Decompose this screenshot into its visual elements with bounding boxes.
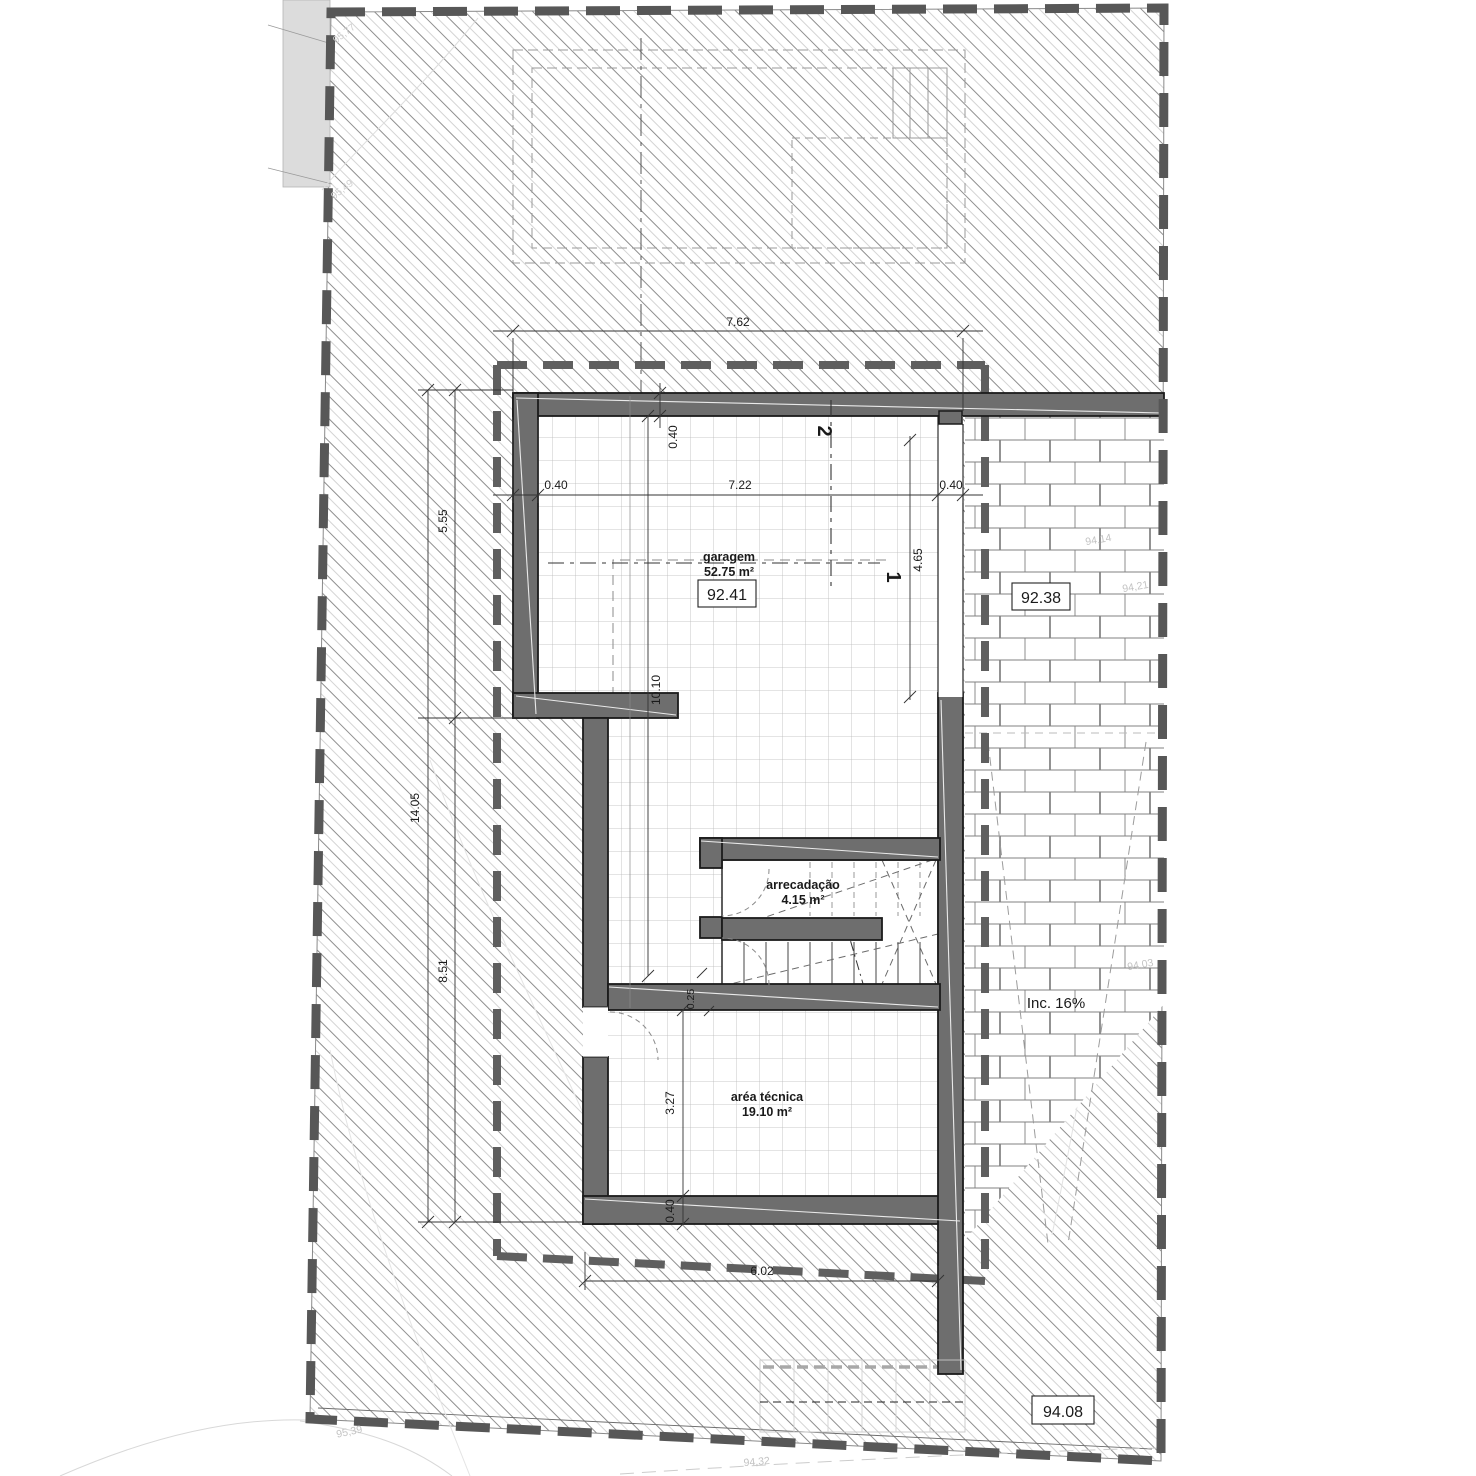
dim-label-door-side: 4.65 [911,548,925,572]
garage-room-area: 52.75 m² [704,565,754,579]
section-marker-1: 1 [882,571,904,582]
terrain-elevation-value: 94.08 [1043,1404,1083,1421]
ramp-slope-label: Inc. 16% [1027,995,1085,1012]
wall-west-upper [583,718,608,1007]
dim-label-garage-depth: 10.10 [649,675,663,705]
dim-label-wall-right: 0.40 [939,478,963,492]
wall-garage-west [513,393,538,718]
wall-stair-west-b [700,917,722,938]
dim-label-wall-left: 0.40 [544,478,568,492]
dim-label-bottom: 6.02 [750,1264,774,1278]
floor-plan-drawing: 7.62 7.22 0.40 0.40 0.40 4.65 10.10 14.0… [0,0,1476,1476]
dim-label-garage-clear: 7.22 [728,478,752,492]
dim-label-left-total: 14.05 [408,793,422,823]
floor-plan-page: 7.62 7.22 0.40 0.40 0.40 4.65 10.10 14.0… [0,0,1476,1476]
section-marker-2: 2 [813,425,835,436]
contour-label-94-32: 94,32 [743,1455,770,1469]
technical-room-area: 19.10 m² [742,1105,792,1119]
storage-room-area: 4.15 m² [781,893,824,907]
garage-room-name: garagem [703,550,755,564]
driveway-elevation-value: 92.38 [1021,590,1061,607]
wall-stair-mid [722,918,882,940]
west-door-opening [583,1007,608,1057]
dim-label-wall-bottom: 0.40 [663,1199,677,1223]
dim-label-tech-depth: 3.27 [663,1091,677,1115]
garage-door-opening [938,416,963,697]
garage-door-stub [939,411,962,424]
dim-label-left-lower: 8.51 [436,959,450,983]
neighbor-parcel [268,0,332,187]
dim-label-int-wall: 0.25 [685,989,697,1010]
garage-elevation-value: 92.41 [707,587,747,604]
wall-north [513,393,1164,416]
technical-room-name: aréa técnica [731,1090,804,1104]
dim-label-wall-top: 0.40 [666,425,680,449]
dim-label-left-upper: 5.55 [436,509,450,533]
dim-label-site-top: 7.62 [726,315,750,329]
storage-room-name: arrecadação [766,878,840,892]
contour-label-95-39: 95,39 [335,1423,363,1440]
